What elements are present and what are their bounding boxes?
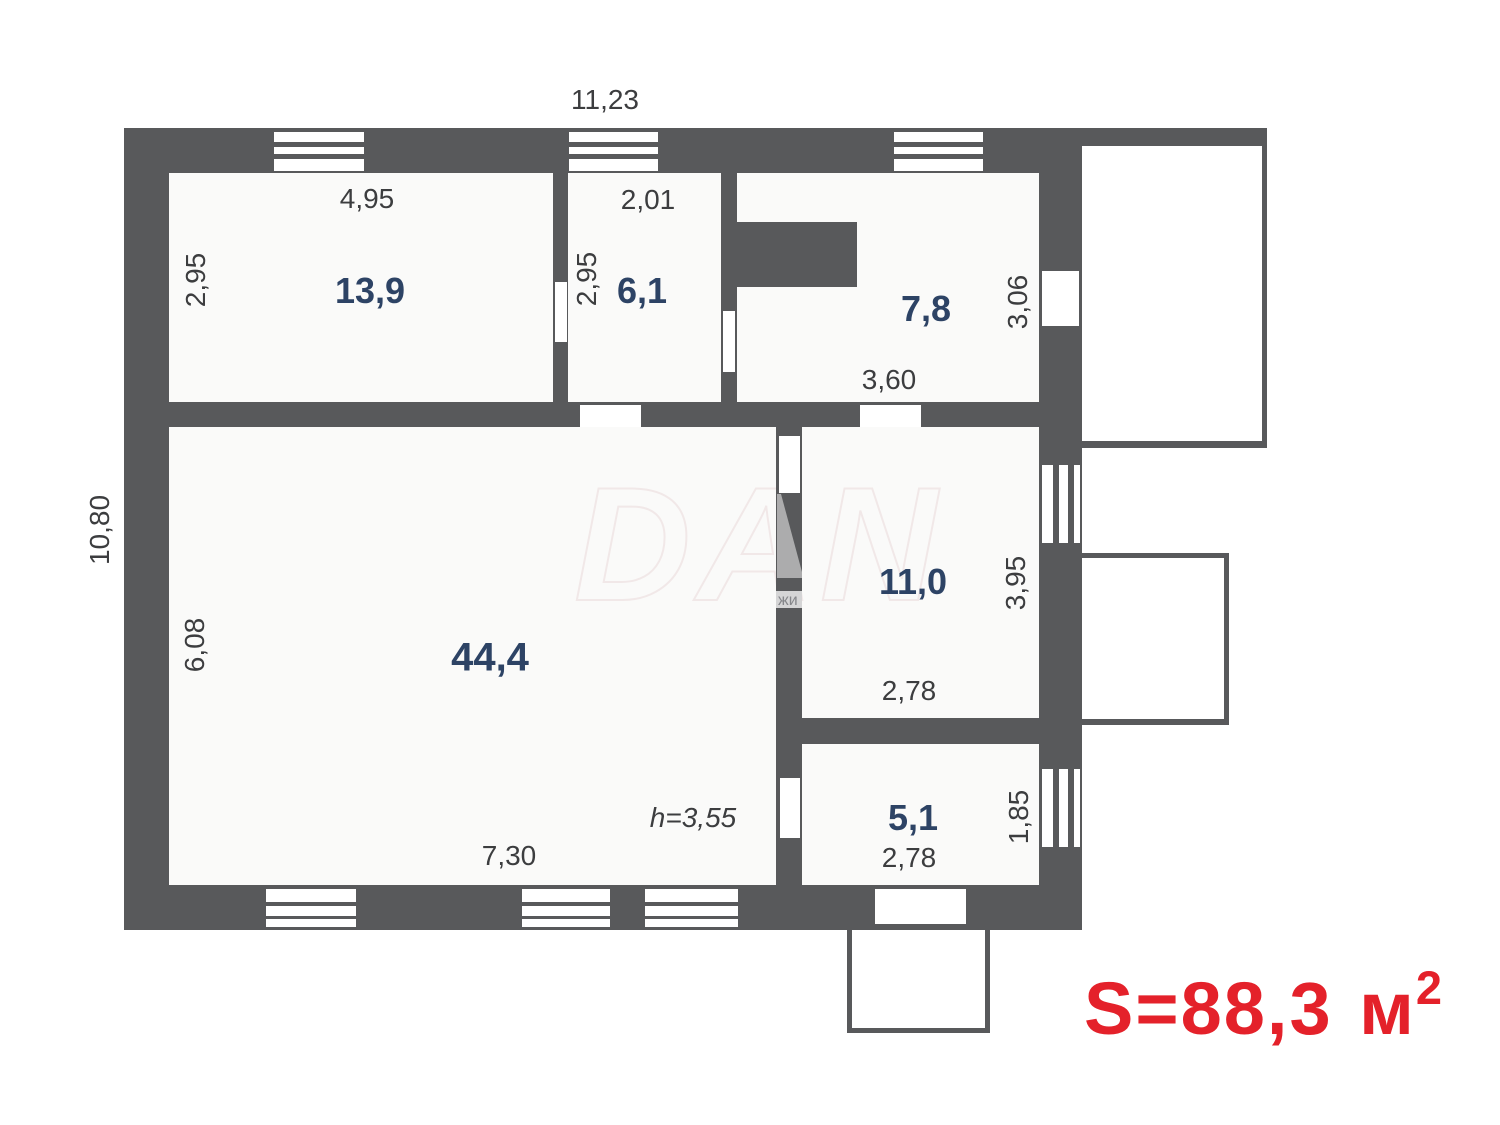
svg-text:жи: жи [778, 592, 798, 609]
